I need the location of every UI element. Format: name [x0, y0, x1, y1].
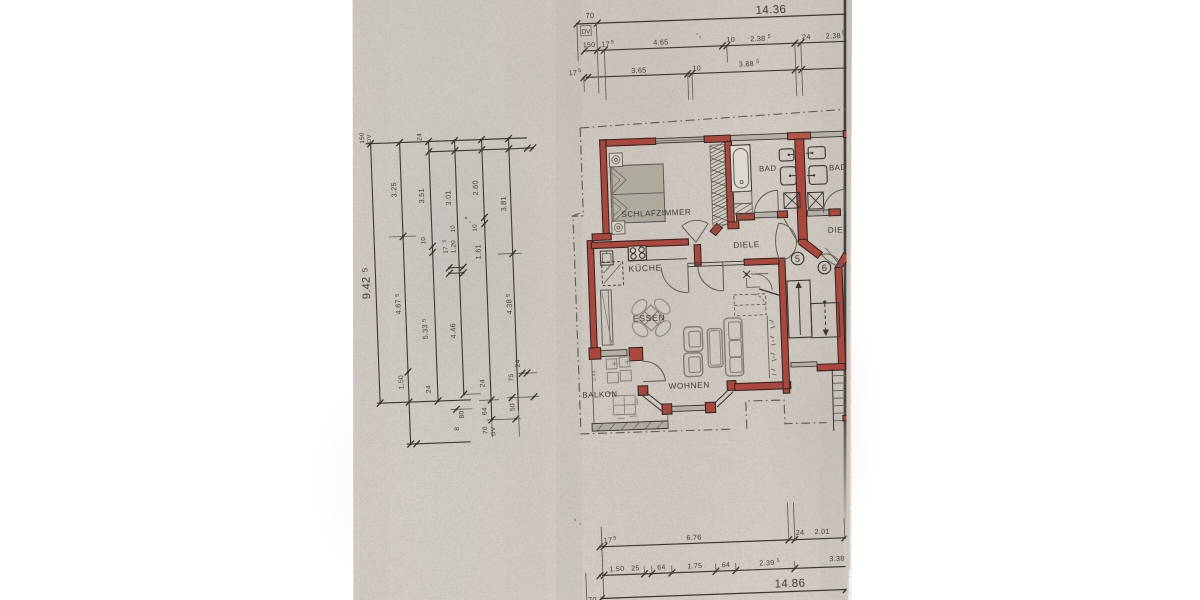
svg-text:10: 10	[692, 63, 701, 72]
svg-text:5: 5	[442, 239, 448, 242]
svg-text:2.60: 2.60	[471, 180, 481, 196]
svg-text:1.50: 1.50	[609, 566, 624, 574]
svg-text:9.42: 9.42	[360, 276, 373, 299]
svg-text:ESSEN: ESSEN	[633, 312, 666, 323]
svg-text:24: 24	[802, 32, 811, 41]
svg-text:50: 50	[509, 403, 516, 411]
svg-text:150: 150	[359, 132, 366, 144]
svg-text:2.49: 2.49	[592, 370, 598, 381]
svg-text:1.20: 1.20	[450, 240, 457, 254]
svg-text:14.86: 14.86	[774, 577, 805, 590]
svg-text:70: 70	[588, 595, 597, 600]
svg-text:DV: DV	[581, 28, 591, 35]
svg-text:5: 5	[768, 34, 771, 40]
svg-text:150: 150	[583, 42, 596, 49]
svg-text:5: 5	[611, 40, 614, 46]
svg-text:24: 24	[515, 359, 522, 367]
svg-text:2.01: 2.01	[814, 527, 830, 537]
svg-text:2.39: 2.39	[759, 558, 775, 568]
svg-text:3.38: 3.38	[829, 554, 845, 564]
svg-text:17: 17	[568, 68, 577, 77]
svg-text:5: 5	[756, 59, 759, 65]
svg-text:14.36: 14.36	[755, 4, 786, 17]
svg-text:10: 10	[726, 35, 735, 44]
svg-text:4.46: 4.46	[448, 323, 458, 339]
svg-text:2.38: 2.38	[750, 34, 766, 44]
svg-text:BALKON: BALKON	[582, 390, 617, 400]
svg-text:4.65: 4.65	[653, 37, 669, 47]
svg-text:5: 5	[578, 68, 581, 74]
svg-text:64: 64	[657, 564, 666, 571]
svg-text:DV: DV	[491, 427, 497, 436]
svg-text:4.38: 4.38	[504, 299, 514, 315]
svg-text:3.51: 3.51	[417, 188, 427, 204]
svg-text:5: 5	[506, 293, 512, 296]
svg-text:BAD: BAD	[759, 164, 777, 174]
svg-text:10: 10	[420, 237, 427, 245]
svg-text:3.65: 3.65	[631, 65, 647, 75]
svg-text:2.38: 2.38	[826, 31, 842, 41]
svg-text:5: 5	[360, 267, 369, 272]
svg-text:10: 10	[472, 224, 479, 232]
svg-text:3.81: 3.81	[499, 196, 509, 212]
svg-text:64: 64	[481, 407, 488, 415]
svg-text:24: 24	[479, 379, 486, 387]
svg-text:64: 64	[722, 562, 731, 569]
svg-text:17: 17	[601, 39, 610, 48]
svg-text:5: 5	[613, 536, 616, 542]
svg-text:5: 5	[422, 319, 428, 322]
svg-text:8: 8	[454, 426, 461, 430]
svg-text:17: 17	[604, 536, 613, 545]
svg-text:5: 5	[795, 254, 801, 264]
svg-text:17: 17	[442, 246, 449, 254]
svg-text:WOHNEN: WOHNEN	[668, 380, 710, 392]
svg-text:24: 24	[425, 385, 432, 393]
svg-text:1.50: 1.50	[398, 375, 406, 390]
svg-text:DV: DV	[367, 134, 373, 143]
svg-text:70: 70	[482, 426, 489, 434]
svg-text:5: 5	[842, 30, 846, 36]
svg-text:6: 6	[822, 263, 828, 273]
svg-text:70: 70	[585, 11, 594, 20]
svg-text:KÜCHE: KÜCHE	[628, 263, 662, 274]
svg-text:25: 25	[631, 565, 640, 572]
svg-text:4.67: 4.67	[393, 299, 403, 315]
svg-text:3.25: 3.25	[389, 182, 399, 198]
svg-text:1.61: 1.61	[473, 244, 483, 260]
svg-text:3.01: 3.01	[443, 190, 453, 206]
svg-text:BAD: BAD	[829, 163, 847, 173]
svg-text:24: 24	[796, 528, 805, 537]
svg-text:DIELE: DIELE	[733, 240, 760, 250]
svg-text:3.88: 3.88	[739, 59, 755, 69]
svg-text:5: 5	[395, 294, 401, 297]
svg-text:24: 24	[416, 133, 423, 141]
svg-text:6.76: 6.76	[686, 533, 702, 543]
svg-text:1.75: 1.75	[687, 563, 702, 571]
svg-text:10: 10	[450, 225, 457, 233]
svg-text:5.33: 5.33	[420, 324, 430, 340]
svg-text:80: 80	[458, 410, 465, 418]
svg-text:5: 5	[777, 558, 780, 564]
svg-text:75: 75	[508, 373, 515, 381]
